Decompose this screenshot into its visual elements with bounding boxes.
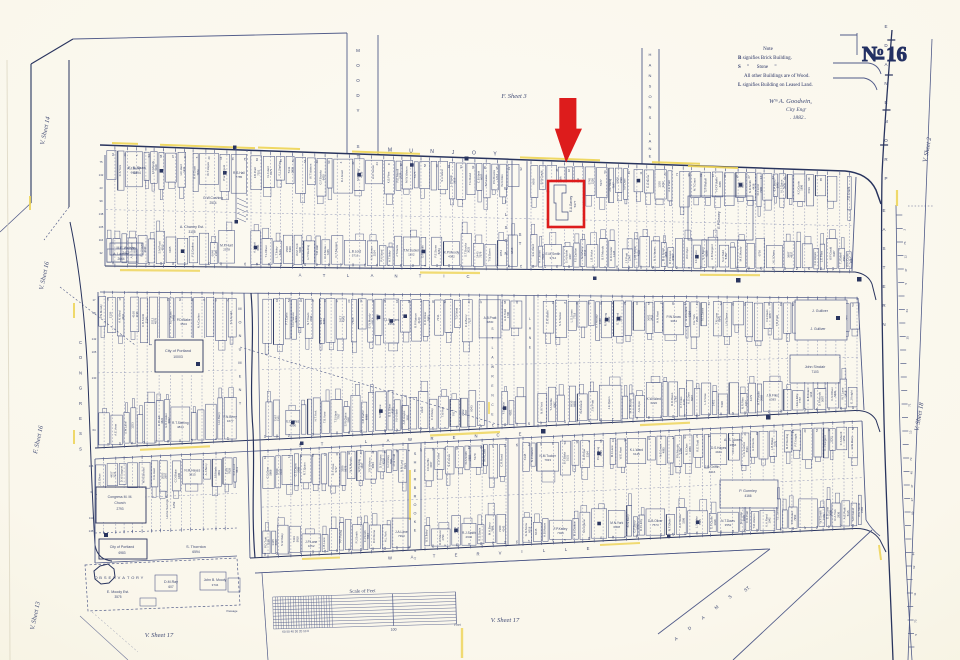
svg-text:94: 94 (707, 434, 711, 438)
svg-text:E.P.Dewey: E.P.Dewey (717, 211, 721, 229)
svg-text:W: W (408, 437, 412, 442)
svg-text:3429: 3429 (420, 406, 424, 413)
svg-text:64: 64 (92, 428, 96, 432)
svg-text:80: 80 (431, 544, 435, 548)
svg-text:44: 44 (431, 447, 435, 451)
svg-text:V. Sheet 17: V. Sheet 17 (145, 632, 174, 639)
svg-text:35: 35 (515, 443, 519, 447)
svg-text:67: 67 (747, 175, 751, 179)
svg-text:M.W.Brooks: M.W.Brooks (142, 467, 146, 483)
svg-text:13: 13 (908, 430, 912, 434)
svg-text:21: 21 (743, 432, 747, 436)
svg-text:J.B.Griffin: J.B.Griffin (705, 465, 720, 469)
svg-text:26: 26 (735, 175, 739, 179)
svg-text:F.T.Curtis: F.T.Curtis (285, 312, 289, 325)
svg-text:W: W (388, 556, 392, 561)
svg-text:S.W.Ilsley: S.W.Ilsley (280, 533, 284, 546)
svg-text:17: 17 (527, 539, 531, 543)
svg-text:3064: 3064 (670, 319, 677, 323)
svg-text:95: 95 (599, 439, 603, 443)
svg-text:20: 20 (599, 418, 603, 422)
svg-text:4343: 4343 (342, 316, 346, 322)
svg-text:23: 23 (99, 186, 103, 190)
svg-text:91: 91 (503, 423, 507, 427)
svg-text:1877: 1877 (768, 312, 772, 318)
svg-text:4266: 4266 (718, 181, 722, 187)
svg-text:130: 130 (92, 376, 97, 380)
svg-text:N.F.Dyer: N.F.Dyer (623, 178, 627, 189)
svg-text:93: 93 (311, 550, 315, 554)
svg-text:U: U (239, 348, 242, 352)
svg-text:7718: 7718 (573, 312, 577, 318)
svg-text:H.A.Berry: H.A.Berry (217, 412, 221, 425)
svg-text:20: 20 (719, 530, 723, 534)
svg-text:86: 86 (627, 265, 631, 269)
svg-text:85: 85 (291, 263, 295, 267)
svg-text:4511: 4511 (235, 466, 239, 472)
svg-text:2195: 2195 (214, 250, 218, 256)
svg-text:7933: 7933 (544, 458, 551, 462)
svg-text:70: 70 (695, 413, 699, 417)
svg-text:V. Sheet 17: V. Sheet 17 (491, 617, 520, 624)
svg-text:74: 74 (731, 433, 735, 437)
svg-text:6830: 6830 (487, 320, 494, 324)
svg-text:5918: 5918 (295, 536, 299, 542)
svg-text:E: E (587, 546, 590, 551)
svg-text:F.B.Knight: F.B.Knight (846, 187, 850, 200)
svg-text:73: 73 (914, 619, 918, 623)
svg-text:M: M (238, 307, 241, 311)
svg-text:138: 138 (99, 212, 104, 216)
svg-text:10003: 10003 (173, 355, 183, 359)
svg-text:27: 27 (335, 549, 339, 553)
svg-text:1477: 1477 (744, 400, 748, 406)
svg-text:City Engʳ: City Engʳ (786, 107, 807, 113)
svg-text:M.W.Watson: M.W.Watson (405, 166, 409, 183)
svg-text:N.P.Watson: N.P.Watson (530, 447, 534, 462)
svg-text:25: 25 (671, 532, 675, 536)
svg-text:58: 58 (423, 164, 427, 168)
svg-text:T.B.Pratt: T.B.Pratt (775, 315, 779, 326)
svg-text:62: 62 (779, 409, 783, 413)
svg-text:R.T.Quinn: R.T.Quinn (303, 462, 307, 475)
svg-text:C: C (496, 433, 499, 438)
svg-text:3938: 3938 (783, 183, 787, 189)
svg-text:E: E (455, 552, 458, 557)
svg-text:W: W (491, 365, 494, 369)
svg-text:96: 96 (407, 299, 411, 303)
svg-text:11: 11 (407, 428, 411, 431)
svg-text:I: I (521, 549, 522, 554)
svg-text:C.T.Sargent: C.T.Sargent (334, 242, 338, 257)
svg-text:3504: 3504 (180, 322, 187, 326)
svg-text:A: A (122, 575, 125, 580)
svg-text:E: E (519, 432, 522, 437)
svg-text:6841: 6841 (718, 315, 722, 321)
svg-text:G: G (79, 386, 82, 391)
svg-text:17: 17 (479, 300, 483, 304)
svg-text:54: 54 (815, 428, 819, 432)
svg-text:H.T.Sterling: H.T.Sterling (306, 244, 310, 259)
svg-text:72: 72 (315, 263, 319, 267)
svg-text:48: 48 (371, 450, 375, 454)
svg-text:N.H.Nash: N.H.Nash (394, 409, 398, 422)
svg-text:1556: 1556 (388, 322, 395, 326)
svg-text:Scale of Feet: Scale of Feet (349, 589, 376, 595)
svg-text:27: 27 (910, 498, 914, 502)
svg-text:65: 65 (743, 529, 747, 533)
svg-text:6645: 6645 (534, 528, 538, 535)
svg-text:H: H (414, 461, 417, 465)
svg-text:90: 90 (599, 301, 603, 305)
svg-text:69: 69 (347, 299, 351, 303)
svg-text:69: 69 (587, 536, 591, 540)
svg-text:S: S (491, 327, 493, 331)
svg-text:5691: 5691 (347, 416, 351, 422)
svg-text:88: 88 (399, 163, 403, 167)
svg-text:M.F.Lane: M.F.Lane (610, 445, 614, 457)
svg-text:38: 38 (383, 429, 387, 433)
svg-text:25: 25 (906, 336, 910, 340)
svg-text:Y: Y (356, 108, 359, 113)
svg-text:G.J.Knight: G.J.Knight (850, 390, 854, 404)
svg-text:21: 21 (543, 265, 547, 269)
svg-text:E. Moody Est.: E. Moody Est. (107, 590, 129, 594)
svg-text:85: 85 (455, 543, 459, 547)
svg-text:2897: 2897 (164, 472, 168, 478)
svg-text:M.E.Moody: M.E.Moody (738, 246, 742, 261)
svg-text:5131: 5131 (566, 455, 570, 461)
svg-text:79: 79 (711, 266, 715, 270)
svg-text:64: 64 (275, 298, 279, 302)
svg-text:D.W.Todd: D.W.Todd (392, 453, 396, 466)
svg-text:A: A (387, 438, 390, 443)
svg-text:P.P.Young: P.P.Young (339, 530, 343, 543)
svg-text:4090: 4090 (289, 424, 296, 428)
svg-text:N: N (239, 334, 242, 338)
svg-text:6987: 6987 (690, 395, 694, 401)
svg-text:6138: 6138 (523, 453, 527, 460)
svg-text:1451: 1451 (712, 399, 716, 406)
svg-text:17: 17 (791, 430, 795, 434)
svg-text:S: S (882, 246, 885, 251)
svg-text:50: 50 (747, 266, 751, 270)
svg-text:60 50 40 30 20 10 0: 60 50 40 30 20 10 0 (282, 629, 309, 634)
svg-text:F.S.Davis: F.S.Davis (502, 401, 506, 414)
svg-text:95: 95 (483, 166, 487, 170)
svg-text:M: M (356, 48, 360, 53)
svg-text:3007: 3007 (568, 253, 572, 259)
svg-text:98: 98 (807, 177, 811, 181)
svg-text:66: 66 (575, 301, 579, 305)
svg-text:45: 45 (815, 407, 819, 411)
svg-text:City of Portland: City of Portland (110, 545, 135, 549)
svg-text:R: R (476, 551, 479, 556)
svg-text:47: 47 (910, 484, 914, 488)
svg-text:4120: 4120 (417, 317, 421, 323)
svg-text:5097: 5097 (821, 396, 825, 402)
svg-text:E: E (882, 284, 885, 289)
svg-text:47: 47 (659, 415, 663, 419)
svg-text:3232: 3232 (661, 181, 665, 187)
svg-text:1706: 1706 (506, 312, 510, 318)
svg-text:5737: 5737 (334, 466, 338, 472)
svg-text:48: 48 (118, 442, 122, 446)
svg-text:40: 40 (555, 168, 559, 172)
svg-text:N: N (649, 146, 652, 151)
svg-text:19: 19 (507, 167, 511, 171)
svg-text:43: 43 (851, 524, 855, 528)
svg-text:A: A (299, 273, 302, 278)
svg-text:145: 145 (89, 529, 94, 533)
svg-text:2909: 2909 (619, 315, 623, 321)
svg-text:35: 35 (431, 426, 435, 430)
svg-text:R.E.Todd: R.E.Todd (695, 439, 699, 451)
svg-text:T.B.Vose: T.B.Vose (323, 411, 327, 423)
svg-text:5977: 5977 (573, 200, 577, 207)
svg-text:S.A.Ward: S.A.Ward (440, 169, 444, 182)
svg-text:6308: 6308 (613, 525, 620, 529)
svg-text:J.E.Quinn: J.E.Quinn (607, 396, 611, 409)
svg-text:. 1882..: . 1882.. (790, 115, 806, 121)
svg-text:55: 55 (231, 157, 235, 161)
svg-text:55: 55 (447, 164, 451, 168)
svg-text:61: 61 (587, 301, 591, 305)
svg-text:6387: 6387 (832, 250, 836, 256)
svg-text:6331: 6331 (256, 244, 260, 250)
svg-text:40: 40 (910, 471, 914, 475)
svg-text:B.W.Gould: B.W.Gould (539, 170, 543, 184)
svg-text:W.F.Dyer: W.F.Dyer (685, 247, 689, 259)
svg-text:5080: 5080 (298, 246, 302, 252)
svg-text:69: 69 (699, 173, 703, 177)
svg-text:32: 32 (190, 298, 194, 302)
svg-text:N.W.York: N.W.York (539, 401, 543, 413)
svg-text:105: 105 (92, 350, 97, 354)
svg-text:43: 43 (771, 176, 775, 180)
svg-text:7757: 7757 (798, 397, 802, 403)
svg-text:34: 34 (659, 533, 663, 537)
svg-text:5675: 5675 (344, 465, 348, 471)
svg-text:7573: 7573 (652, 523, 659, 527)
svg-text:6145: 6145 (633, 452, 640, 456)
svg-text:40: 40 (467, 300, 471, 304)
svg-text:All other Buildings are of Woo: All other Buildings are of Wood. (744, 74, 810, 79)
svg-text:14: 14 (287, 454, 291, 458)
svg-text:P.J.Smith: P.J.Smith (354, 531, 358, 543)
svg-text:7767: 7767 (337, 413, 341, 419)
svg-text:1228: 1228 (612, 250, 616, 256)
svg-text:E: E (491, 384, 493, 388)
svg-text:6263: 6263 (437, 248, 441, 254)
svg-text:85: 85 (383, 450, 387, 454)
svg-text:99: 99 (455, 446, 459, 450)
svg-text:7725: 7725 (351, 317, 355, 324)
svg-text:72: 72 (299, 551, 303, 555)
svg-text:5919: 5919 (154, 164, 158, 170)
svg-text:105: 105 (99, 225, 104, 229)
svg-text:14: 14 (435, 264, 439, 268)
svg-text:92: 92 (771, 266, 775, 270)
svg-text:B: B (414, 486, 417, 490)
svg-text:R.J.Grant: R.J.Grant (340, 170, 344, 183)
svg-text:T.L.Oliver: T.L.Oliver (264, 245, 268, 257)
svg-text:46: 46 (371, 547, 375, 551)
svg-text:89: 89 (735, 266, 739, 270)
svg-text:O: O (94, 575, 97, 580)
svg-text:48: 48 (731, 412, 735, 416)
svg-text:62: 62 (147, 261, 151, 265)
svg-text:69: 69 (615, 265, 619, 269)
svg-text:16: 16 (178, 439, 182, 443)
svg-text:3883: 3883 (426, 315, 430, 321)
svg-text:38: 38 (190, 438, 194, 442)
svg-text:J.T.Curtis: J.T.Curtis (395, 244, 399, 257)
svg-text:53: 53 (707, 302, 711, 306)
svg-text:46: 46 (315, 160, 319, 164)
svg-text:V: V (118, 575, 121, 580)
svg-text:S.R.Walsh: S.R.Walsh (545, 310, 549, 324)
svg-text:2978: 2978 (223, 248, 230, 252)
svg-text:J. Gulliver: J. Gulliver (810, 327, 826, 331)
svg-text:4131: 4131 (278, 249, 282, 255)
svg-text:64: 64 (395, 299, 399, 303)
svg-text:5429: 5429 (288, 246, 292, 252)
svg-text:4937: 4937 (790, 251, 794, 257)
svg-text:3714: 3714 (550, 256, 557, 260)
svg-text:76: 76 (375, 263, 379, 267)
svg-text:56: 56 (303, 159, 307, 163)
svg-text:51: 51 (287, 433, 291, 437)
svg-text:39: 39 (767, 302, 771, 306)
svg-text:55: 55 (647, 301, 651, 305)
svg-text:46: 46 (347, 451, 351, 455)
svg-text:3301: 3301 (277, 415, 281, 421)
svg-text:N: N (430, 149, 434, 155)
svg-text:30: 30 (671, 302, 675, 306)
svg-text:60: 60 (639, 265, 643, 269)
svg-text:N: N (649, 105, 652, 110)
svg-text:94: 94 (311, 432, 315, 436)
svg-text:5977: 5977 (599, 179, 603, 186)
svg-text:H.B.Mason: H.B.Mason (542, 522, 546, 537)
svg-text:37: 37 (479, 424, 483, 428)
svg-text:E: E (529, 346, 531, 350)
svg-text:S: S (104, 575, 107, 580)
svg-text:72: 72 (551, 538, 555, 542)
svg-text:A.E.Dyer: A.E.Dyer (637, 401, 641, 413)
svg-text:W.B.Rand: W.B.Rand (579, 400, 583, 413)
svg-text:43: 43 (731, 529, 735, 533)
svg-text:26: 26 (303, 263, 307, 267)
svg-text:A: A (649, 63, 652, 68)
svg-text:2129: 2129 (109, 311, 113, 318)
svg-text:32: 32 (99, 251, 103, 255)
svg-text:47: 47 (904, 268, 908, 272)
svg-text:40: 40 (111, 261, 115, 265)
svg-text:23: 23 (663, 172, 667, 176)
svg-text:84: 84 (495, 264, 499, 268)
svg-text:M.H.Moody: M.H.Moody (629, 398, 633, 413)
svg-text:7785: 7785 (236, 175, 243, 179)
svg-text:E: E (414, 469, 417, 473)
svg-text:W: W (504, 186, 508, 191)
svg-text:5800: 5800 (833, 390, 837, 396)
svg-text:2354: 2354 (585, 451, 589, 457)
svg-text:92: 92 (519, 167, 523, 171)
svg-text:19: 19 (551, 301, 555, 305)
svg-text:B.L.Carlton: B.L.Carlton (573, 521, 577, 536)
svg-text:11: 11 (527, 443, 531, 446)
svg-text:4259: 4259 (172, 501, 176, 508)
svg-text:7669: 7669 (491, 525, 495, 531)
svg-text:4639: 4639 (359, 171, 363, 177)
svg-text:6405: 6405 (168, 246, 172, 253)
svg-text:4941: 4941 (715, 450, 722, 454)
svg-text:B signifies Brick Building.: B signifies Brick Building. (738, 56, 792, 61)
svg-text:E.D.Vose: E.D.Vose (436, 452, 440, 464)
svg-text:17: 17 (92, 298, 96, 302)
svg-text:T: T (519, 241, 522, 246)
svg-text:52: 52 (443, 300, 447, 304)
svg-text:92: 92 (851, 406, 855, 410)
svg-text:68: 68 (395, 546, 399, 550)
svg-text:F.H.Hayes: F.H.Hayes (813, 251, 817, 265)
svg-text:91: 91 (683, 435, 687, 439)
svg-text:11: 11 (106, 442, 110, 445)
svg-text:F. Sheet 3: F. Sheet 3 (500, 93, 527, 100)
svg-text:W.N.Berry: W.N.Berry (850, 435, 854, 449)
svg-text:L: L (492, 346, 494, 350)
svg-text:S: S (414, 549, 417, 553)
svg-text:76: 76 (154, 440, 158, 444)
svg-text:Church: Church (114, 501, 125, 505)
svg-text:1717: 1717 (495, 174, 499, 180)
svg-text:6594: 6594 (192, 550, 200, 554)
svg-text:H: H (649, 52, 652, 57)
svg-text:48: 48 (359, 451, 363, 455)
svg-text:50: 50 (699, 266, 703, 270)
svg-text:R: R (414, 478, 417, 482)
svg-text:56: 56 (795, 267, 799, 271)
svg-text:E: E (414, 529, 417, 533)
svg-text:7351: 7351 (256, 169, 260, 175)
svg-text:38: 38 (383, 299, 387, 303)
svg-text:E. S. Shaw: E. S. Shaw (128, 166, 146, 170)
svg-text:30: 30 (515, 300, 519, 304)
svg-text:26: 26 (106, 297, 110, 301)
svg-text:O: O (472, 151, 476, 157)
svg-text:6888: 6888 (364, 414, 368, 420)
svg-text:92: 92 (471, 165, 475, 169)
svg-text:98: 98 (299, 454, 303, 458)
svg-text:1042: 1042 (768, 517, 772, 523)
svg-text:A. Lamont: A. Lamont (113, 252, 129, 256)
svg-text:B.W.Berry: B.W.Berry (626, 514, 630, 528)
svg-text:28: 28 (219, 262, 223, 266)
svg-text:M.N.Quinn: M.N.Quinn (582, 519, 586, 533)
svg-text:16: 16 (563, 420, 567, 424)
svg-text:6885: 6885 (573, 400, 577, 406)
svg-text:53: 53 (851, 303, 855, 307)
svg-text:95: 95 (687, 173, 691, 177)
svg-text:7245: 7245 (326, 249, 330, 255)
svg-text:49: 49 (166, 439, 170, 443)
svg-text:P: P (884, 176, 887, 181)
svg-text:26: 26 (243, 262, 247, 266)
svg-text:6867: 6867 (741, 181, 745, 187)
svg-text:M.P.Sterling: M.P.Sterling (785, 433, 789, 449)
